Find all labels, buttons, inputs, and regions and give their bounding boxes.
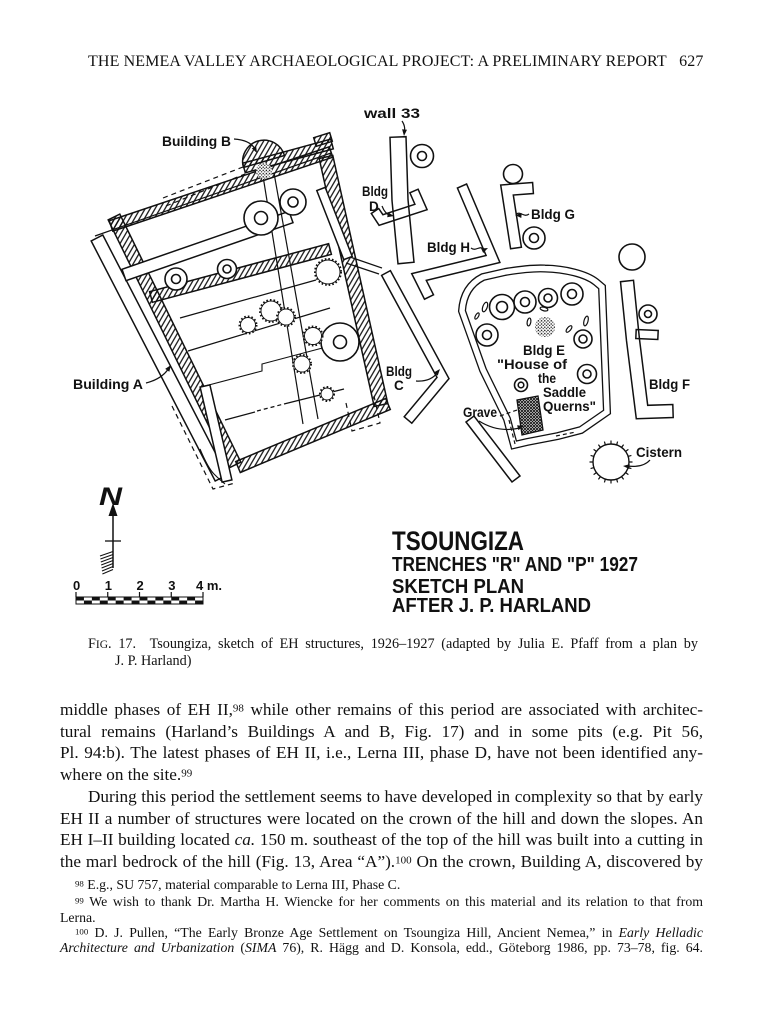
svg-text:Cistern: Cistern bbox=[636, 445, 682, 460]
svg-text:Saddle: Saddle bbox=[543, 385, 586, 400]
svg-text:Bldg E: Bldg E bbox=[523, 343, 565, 358]
svg-text:0: 0 bbox=[73, 578, 80, 593]
svg-text:Bldg: Bldg bbox=[386, 364, 412, 379]
svg-text:Building A: Building A bbox=[73, 376, 143, 392]
svg-text:N: N bbox=[99, 483, 123, 511]
svg-text:Bldg: Bldg bbox=[362, 184, 388, 199]
svg-text:D: D bbox=[369, 199, 379, 214]
svg-text:Grave: Grave bbox=[463, 405, 497, 420]
svg-text:Bldg H: Bldg H bbox=[427, 240, 470, 255]
svg-text:4 m.: 4 m. bbox=[196, 578, 222, 593]
svg-text:Bldg F: Bldg F bbox=[649, 377, 690, 392]
svg-text:2: 2 bbox=[137, 578, 144, 593]
svg-text:3: 3 bbox=[168, 578, 175, 593]
svg-text:C: C bbox=[394, 378, 404, 393]
svg-text:the: the bbox=[538, 371, 556, 386]
svg-text:"House of: "House of bbox=[497, 357, 568, 372]
svg-text:TSOUNGIZA: TSOUNGIZA bbox=[392, 526, 524, 556]
svg-text:Bldg G: Bldg G bbox=[531, 207, 575, 222]
svg-text:AFTER J. P. HARLAND: AFTER J. P. HARLAND bbox=[392, 595, 591, 617]
svg-text:Querns": Querns" bbox=[543, 399, 596, 414]
svg-text:TRENCHES "R" AND "P" 1927: TRENCHES "R" AND "P" 1927 bbox=[392, 554, 638, 576]
svg-text:Building B: Building B bbox=[162, 133, 231, 149]
svg-text:1: 1 bbox=[105, 578, 112, 593]
svg-text:wall 33: wall 33 bbox=[363, 106, 421, 121]
